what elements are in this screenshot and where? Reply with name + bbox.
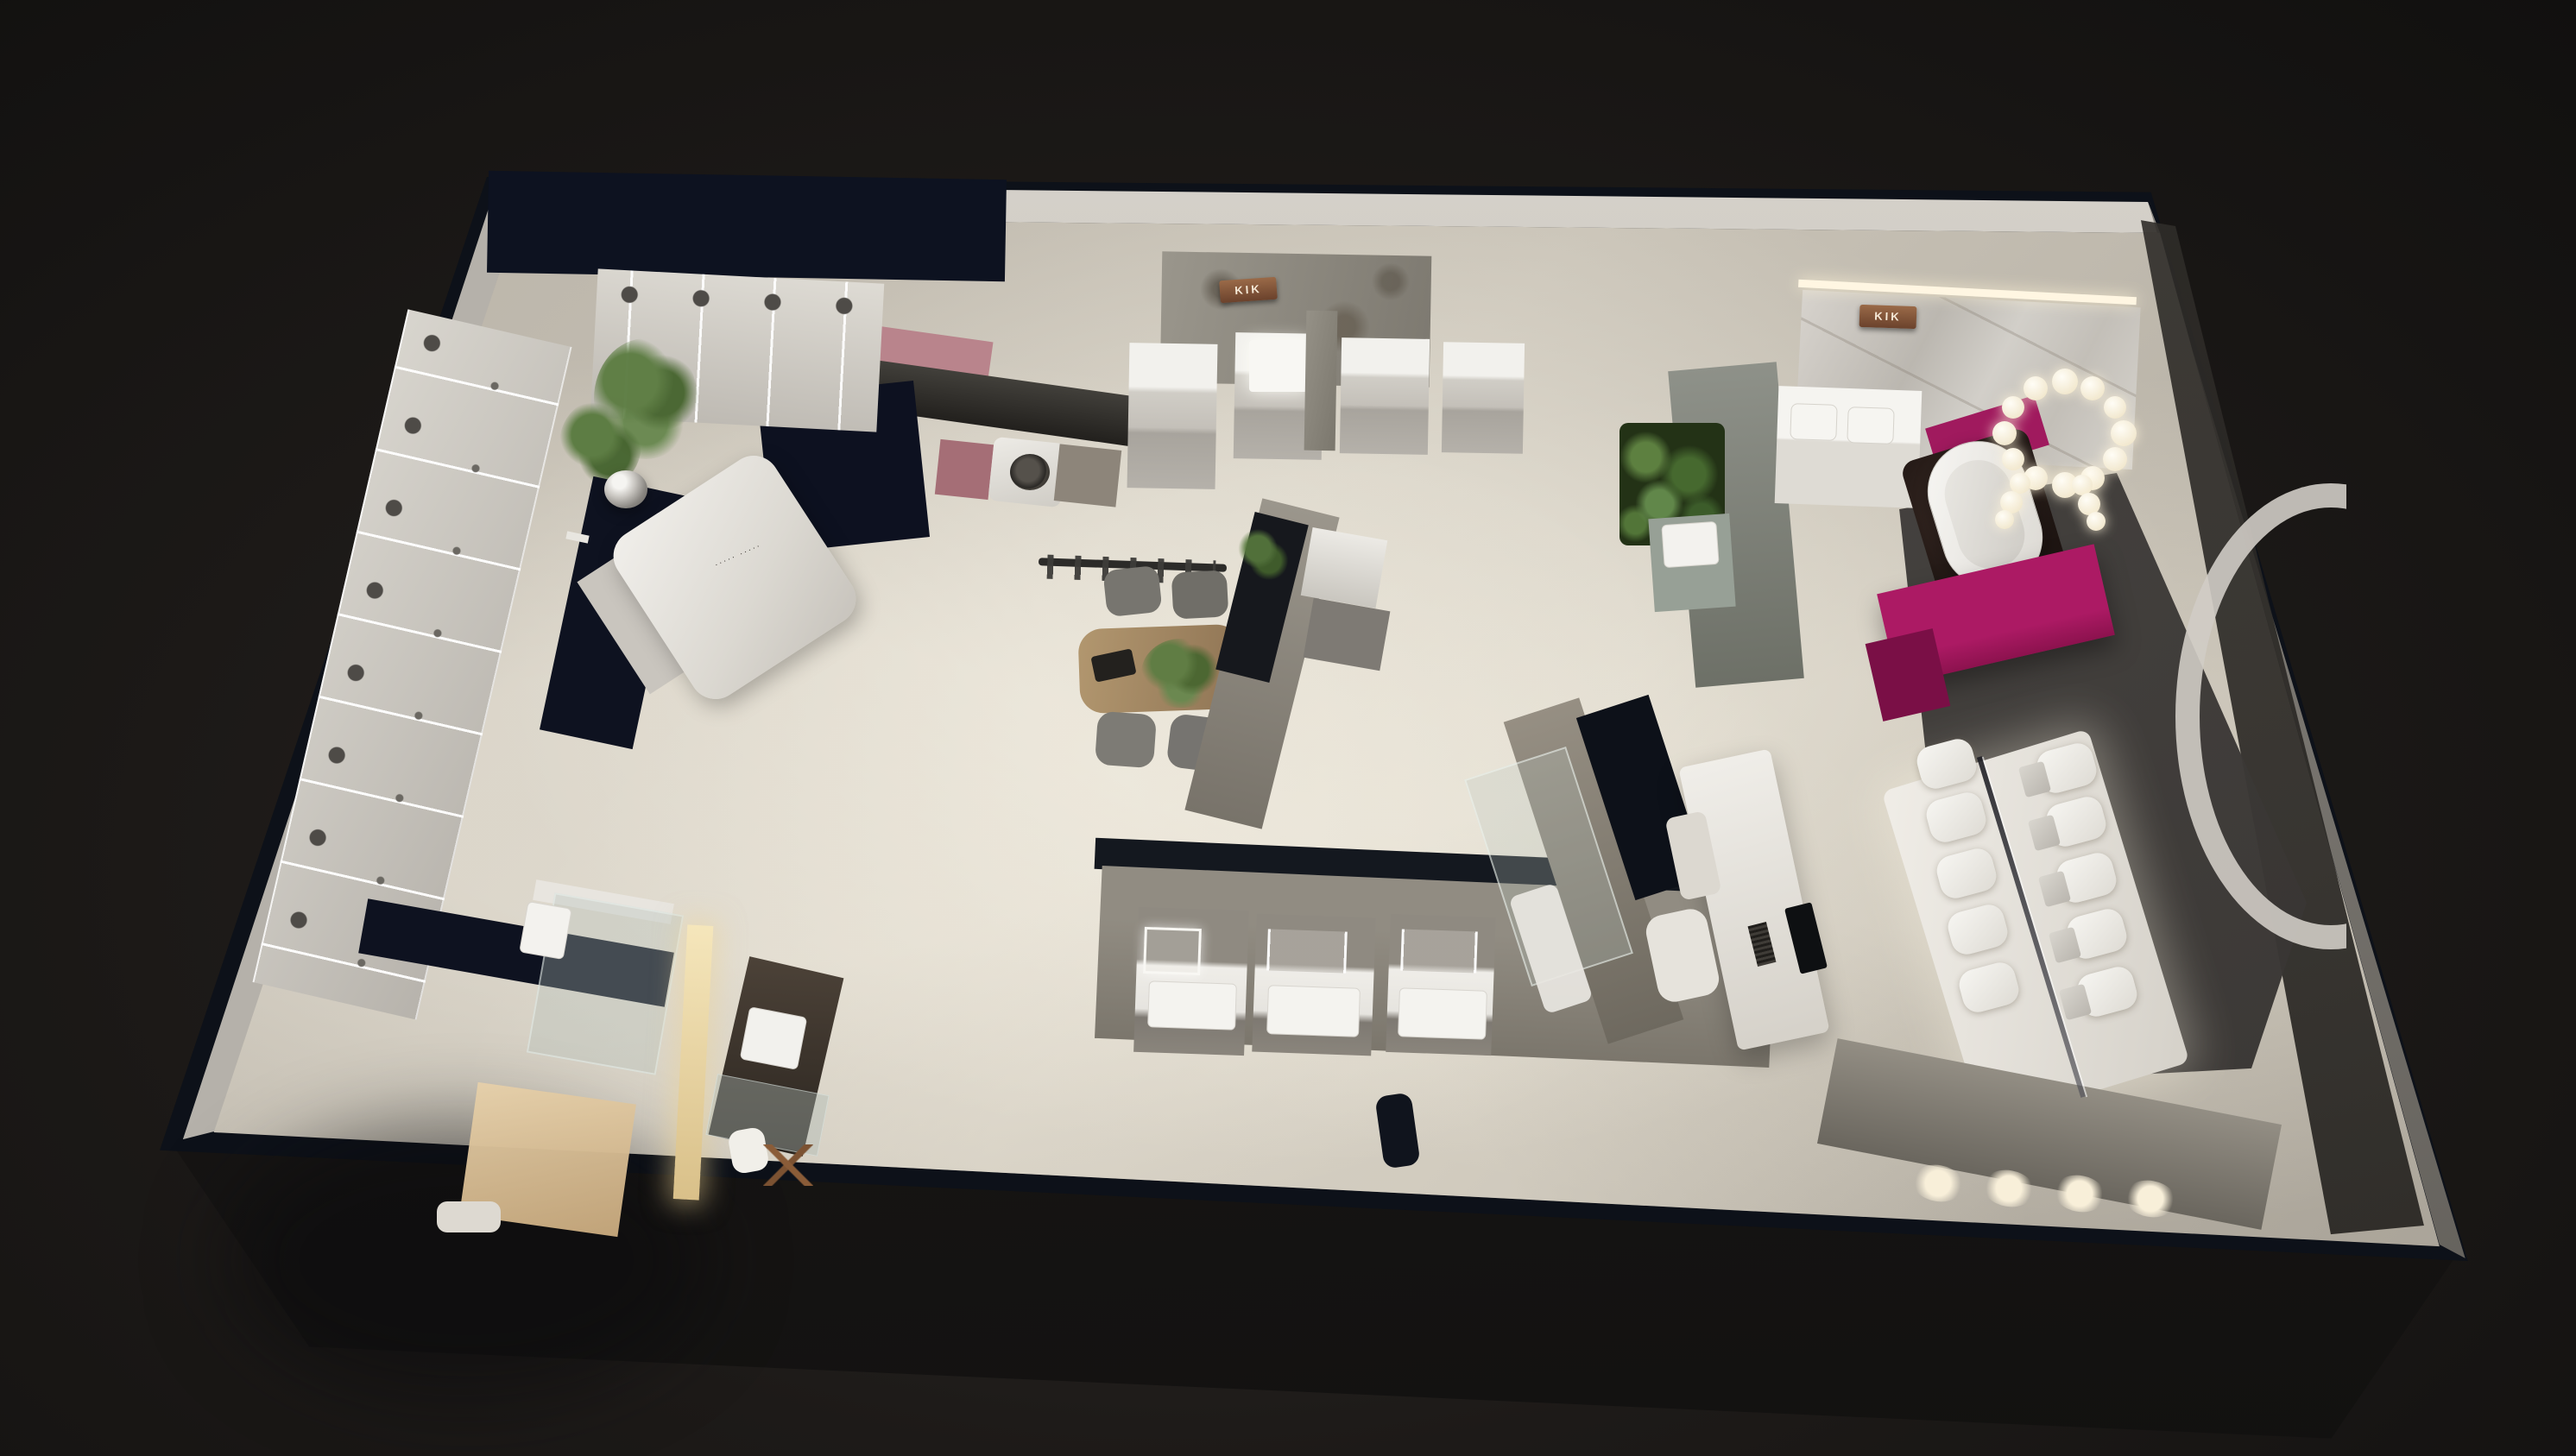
chandelier-bubble — [2103, 447, 2127, 471]
pendant-dome-lamp — [604, 470, 647, 508]
curved-wall-arch — [2175, 483, 2486, 949]
lit-mirror-1 — [1143, 927, 1202, 975]
brand-sign-right-text: KIK — [1874, 309, 1902, 323]
brand-sign-left-text: KIK — [1234, 282, 1262, 297]
washing-machine-door — [1010, 454, 1050, 490]
brand-sign-marble-wall: KIK — [1859, 305, 1917, 329]
station-basin-2 — [1266, 985, 1361, 1037]
vanity-display-a1 — [1127, 343, 1218, 489]
center-vanity-mirror — [1301, 527, 1388, 608]
chandelier-bubble — [1992, 421, 2017, 445]
vanity-display-a3 — [1340, 337, 1430, 455]
table-plant — [1141, 639, 1221, 708]
white-basin-bottomleft — [740, 1006, 808, 1070]
wood-stool — [763, 1144, 813, 1186]
chandelier-bubble — [2052, 369, 2078, 394]
navy-partition-topleft — [487, 171, 1007, 281]
chandelier-bubble — [2080, 376, 2105, 400]
brand-sign-stone-wall: KIK — [1219, 277, 1278, 304]
white-planter — [437, 1201, 501, 1232]
led-mirror-2 — [1266, 929, 1348, 973]
station-basin-1 — [1147, 980, 1237, 1031]
double-basin-left — [1790, 403, 1837, 441]
shelf-plants — [1238, 526, 1288, 582]
chair-3 — [1095, 711, 1157, 769]
stone-pillar — [1304, 311, 1338, 451]
chair-2 — [1171, 570, 1229, 619]
chandelier-bubble — [2002, 396, 2024, 419]
chandelier-bubble — [2024, 376, 2048, 400]
chandelier-bubble — [1995, 510, 2014, 529]
chandelier-bubble — [2087, 512, 2106, 531]
station-basin-3 — [1398, 987, 1487, 1040]
laundry-taupe-cabinet — [1054, 444, 1122, 507]
chandelier-bubble — [2104, 396, 2126, 419]
chandelier-bubble — [2111, 420, 2137, 446]
laundry-rose-cabinet — [935, 439, 994, 500]
chair-1 — [1102, 565, 1162, 617]
showroom-stage: KIK KIK ····· ····· — [0, 0, 2576, 1456]
lit-mirror-a2 — [1249, 340, 1308, 392]
sage-vanity-basin — [1661, 521, 1719, 568]
chandelier-bubble — [2002, 448, 2024, 470]
small-basin-bottomleft — [519, 901, 572, 960]
led-mirror-3 — [1400, 929, 1478, 973]
showroom-render — [0, 0, 2576, 1456]
double-basin-right — [1847, 407, 1894, 444]
vanity-display-a4 — [1442, 342, 1525, 454]
